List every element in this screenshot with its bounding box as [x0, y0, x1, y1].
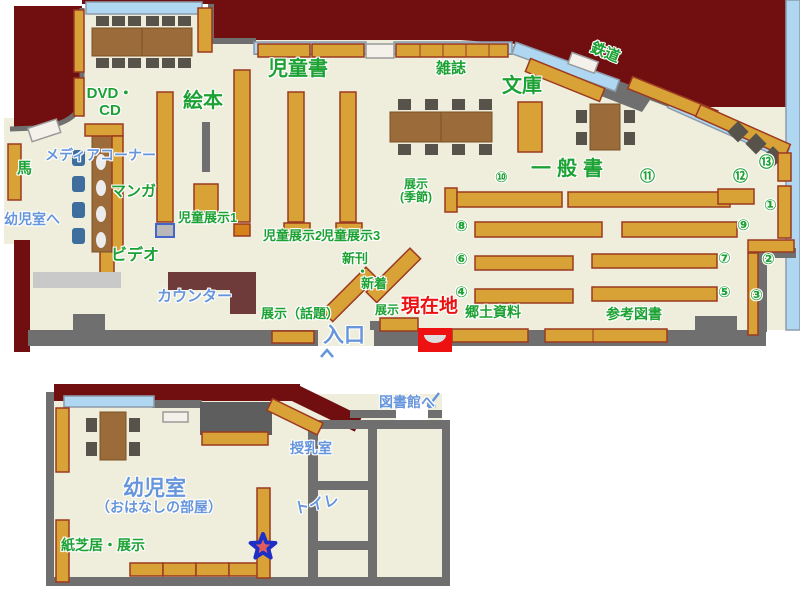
exterior-top-strip	[208, 0, 460, 40]
shelf-jido-col-2-cap	[284, 223, 310, 235]
media-screen-4	[96, 232, 106, 248]
kids-wall-left	[46, 392, 54, 586]
kids-window	[64, 396, 154, 407]
rooms-wall-mid	[368, 429, 377, 577]
media-chair-3	[72, 202, 85, 218]
kids-table	[100, 412, 126, 460]
table-right	[590, 104, 620, 150]
media-screen-2	[96, 180, 106, 196]
media-screen-1	[96, 154, 106, 170]
shelf-col-1	[778, 186, 791, 238]
shelf-row-10	[457, 192, 562, 207]
shelf-dvd-left-2	[74, 78, 84, 116]
door-top	[366, 44, 394, 58]
shelf-kisetsu-cap	[445, 188, 457, 212]
kids-stage-block	[200, 402, 272, 435]
shelf-col-13	[778, 153, 791, 181]
shelf-bunko	[518, 102, 542, 152]
rooms-divider-2	[318, 541, 368, 550]
kids-shelf-bottom-2	[163, 563, 196, 576]
rooms-wall-top	[308, 420, 442, 429]
kids-wall-right	[442, 420, 450, 586]
shelf-tenji-small	[380, 318, 418, 331]
shelf-top-b	[312, 44, 364, 57]
shelf-row-4	[475, 289, 573, 303]
exterior-left-strip	[14, 240, 30, 352]
media-chair-4	[72, 228, 85, 244]
shelf-row-6	[475, 256, 573, 270]
shelf-ehon-endbox	[156, 224, 174, 237]
shelf-ehon-manga	[157, 92, 173, 222]
media-chair-1	[72, 150, 85, 166]
shelf-magazine	[396, 44, 508, 57]
shelf-alcove-right	[198, 8, 212, 52]
current-location-marker	[418, 328, 452, 352]
entrance-gap	[318, 330, 374, 346]
shelf-bottom-right	[545, 329, 667, 342]
window-1	[86, 2, 202, 14]
shelf-kyodo	[452, 329, 528, 342]
shelf-row-8	[475, 222, 602, 237]
exterior-top-left	[14, 6, 82, 127]
kids-shelf-left-2	[56, 520, 69, 582]
shelf-jido-col-1-cap	[234, 224, 250, 236]
kids-door	[163, 412, 188, 422]
shelf-row-7	[592, 254, 717, 268]
shelf-jido-col-3	[340, 92, 356, 222]
shelf-jido-col-2	[288, 92, 304, 222]
wall-notch-left	[73, 314, 105, 331]
shelf-tenji-wadai	[272, 331, 314, 343]
kids-shelf-left-1	[56, 408, 69, 472]
shelf-row-12	[718, 189, 754, 204]
kids-exit-gap	[396, 404, 428, 420]
shelf-col-3	[748, 253, 758, 335]
shelf-row-9	[622, 222, 737, 237]
shelf-jido-col-3-cap	[336, 223, 362, 235]
shelf-row-11	[568, 192, 730, 207]
media-frame-right	[112, 136, 123, 252]
shelf-horse	[8, 144, 21, 200]
staff-area	[33, 272, 121, 288]
rooms-divider-1	[318, 481, 368, 490]
entrance-arrow-icon	[321, 350, 333, 357]
library-floor-map: 児童書雑誌文庫鉄道DVD・ CD絵本馬マンガビデオ児童展示1児童展示2児童展示3…	[0, 0, 800, 590]
kids-wall-top-mid	[152, 400, 202, 408]
shelf-row-2	[748, 240, 794, 252]
floor-map-svg	[0, 0, 800, 590]
kids-shelf-bottom-3	[196, 563, 229, 576]
kids-wall-bottom	[46, 577, 450, 586]
rooms-wall-left	[308, 429, 318, 577]
shelf-dvd-left-1	[74, 10, 84, 72]
kids-shelf-stage	[202, 432, 268, 445]
shelf-row-5	[592, 287, 717, 301]
wall-notch-right	[695, 316, 737, 331]
media-screen-3	[96, 206, 106, 222]
media-frame-top	[85, 124, 123, 136]
wall-step	[208, 38, 256, 44]
kids-shelf-bottom-1	[130, 563, 163, 576]
wall-corner-room-left	[758, 258, 767, 332]
media-chair-2	[72, 176, 85, 192]
shelf-top-a	[258, 44, 310, 57]
ehon-divider	[202, 122, 210, 172]
shelf-jido-col-1	[234, 70, 250, 222]
shelf-jido-tenji-1	[194, 184, 218, 212]
